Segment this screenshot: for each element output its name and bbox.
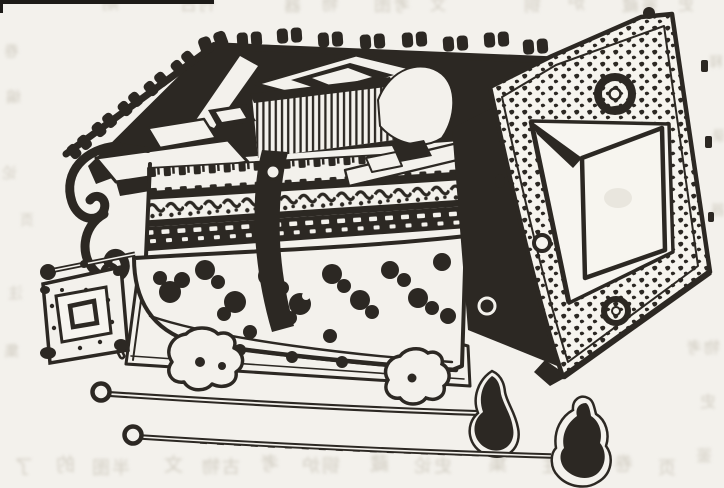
square-tray bbox=[40, 254, 135, 363]
cloud-foot-right bbox=[386, 349, 449, 404]
window-smudge bbox=[604, 188, 632, 208]
rod-b-loop bbox=[125, 427, 142, 444]
scan-artifact-strip bbox=[0, 0, 214, 13]
cloud-foot-left bbox=[169, 328, 243, 390]
artifact-illustration: Ink line drawing of an ornate ancient br… bbox=[0, 0, 724, 488]
panel-edge-bump bbox=[495, 174, 505, 188]
rod-a-gourd-finial bbox=[470, 371, 519, 457]
handle-ring-hole bbox=[266, 165, 280, 179]
tray-boss bbox=[56, 287, 111, 342]
panel-side-loop bbox=[534, 235, 550, 251]
scanned-page: 期刊古器物考图文铜炉鉴藏史卷编论页注集释录器物考史鉴了的半图文古物考铜炉藏史论集… bbox=[0, 0, 724, 488]
rod-b-gourd-finial bbox=[552, 397, 611, 487]
rod-a-loop bbox=[93, 384, 110, 401]
